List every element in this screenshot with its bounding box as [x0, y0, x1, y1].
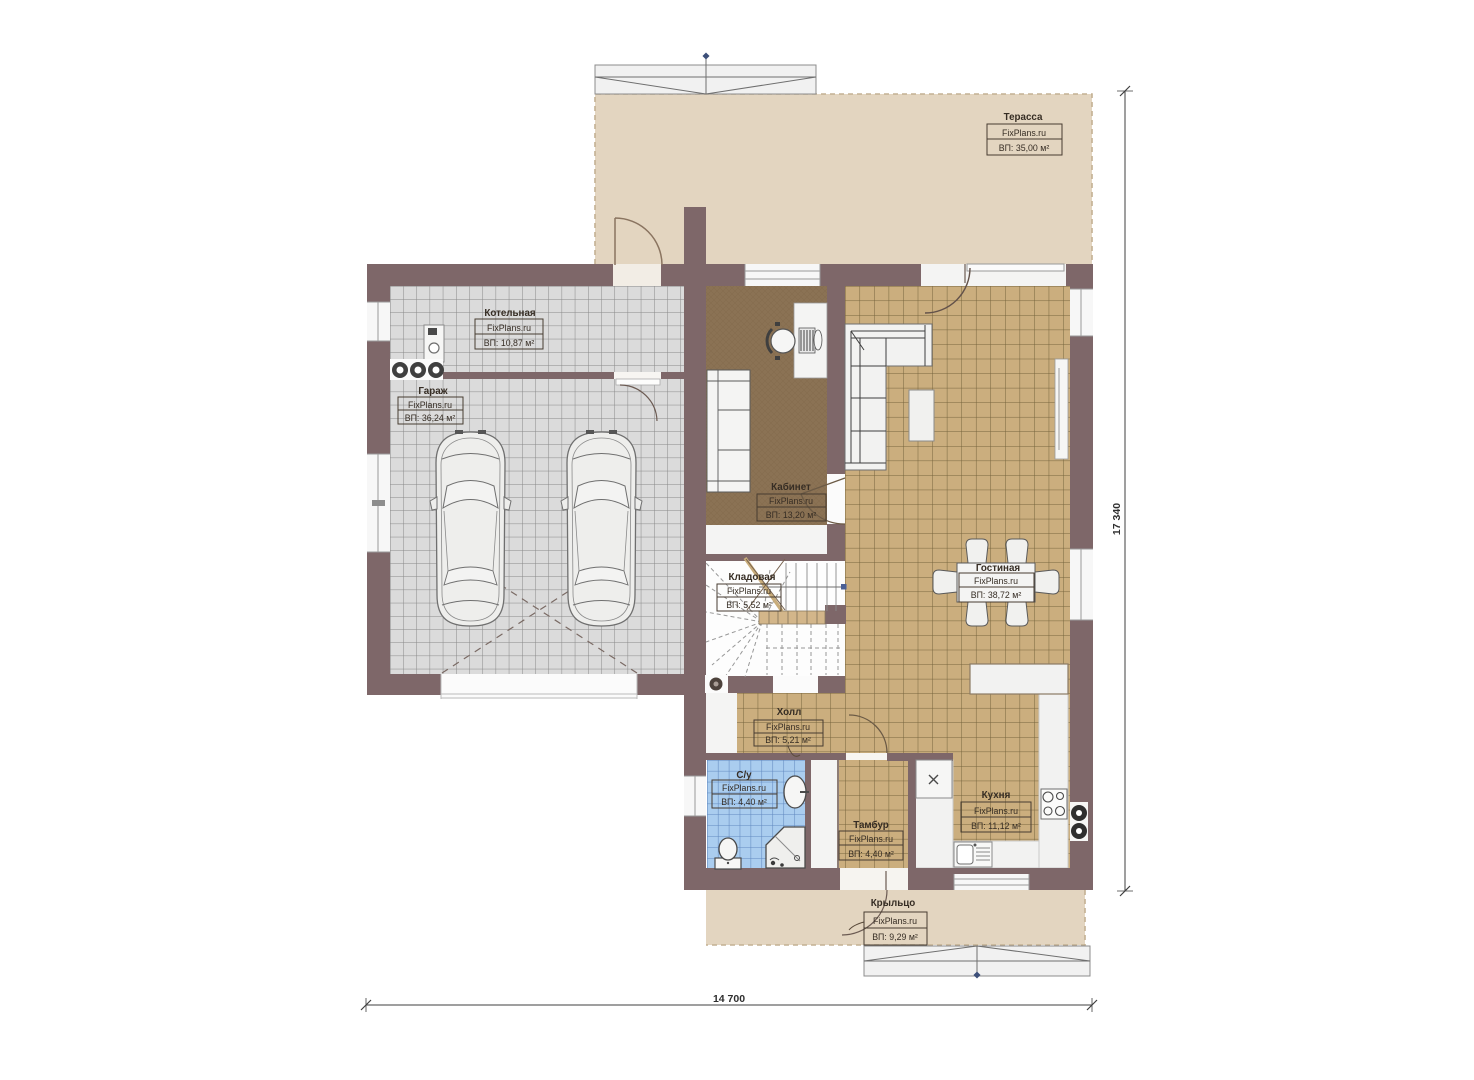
svg-text:FixPlans.ru: FixPlans.ru	[974, 806, 1018, 816]
svg-text:FixPlans.ru: FixPlans.ru	[727, 586, 771, 596]
svg-text:ВП: 4,40 м²: ВП: 4,40 м²	[721, 797, 767, 807]
svg-text:FixPlans.ru: FixPlans.ru	[974, 576, 1018, 586]
svg-text:FixPlans.ru: FixPlans.ru	[769, 496, 813, 506]
svg-text:Крыльцо: Крыльцо	[871, 898, 916, 909]
svg-text:ВП: 11,12 м²: ВП: 11,12 м²	[971, 821, 1021, 831]
svg-text:ВП: 13,20 м²: ВП: 13,20 м²	[766, 510, 817, 520]
svg-text:Холл: Холл	[777, 707, 802, 718]
svg-text:FixPlans.ru: FixPlans.ru	[1002, 128, 1046, 138]
svg-text:ВП: 5,52 м²: ВП: 5,52 м²	[726, 600, 772, 610]
svg-text:17 340: 17 340	[1111, 503, 1123, 535]
svg-text:Тамбур: Тамбур	[853, 820, 889, 831]
svg-text:Кабинет: Кабинет	[771, 482, 811, 493]
svg-text:FixPlans.ru: FixPlans.ru	[766, 722, 810, 732]
svg-text:14 700: 14 700	[713, 993, 745, 1005]
svg-text:FixPlans.ru: FixPlans.ru	[487, 323, 531, 333]
svg-text:Кухня: Кухня	[982, 790, 1011, 801]
svg-text:Гостиная: Гостиная	[976, 563, 1021, 574]
svg-text:FixPlans.ru: FixPlans.ru	[722, 783, 766, 793]
svg-text:Кладовая: Кладовая	[729, 572, 776, 583]
svg-text:ВП: 9,29 м²: ВП: 9,29 м²	[872, 932, 918, 942]
svg-text:Гараж: Гараж	[418, 386, 448, 397]
svg-text:ВП: 4,40 м²: ВП: 4,40 м²	[848, 849, 894, 859]
svg-text:ВП: 36,24 м²: ВП: 36,24 м²	[405, 413, 456, 423]
svg-text:Котельная: Котельная	[484, 308, 536, 319]
svg-text:FixPlans.ru: FixPlans.ru	[408, 400, 452, 410]
svg-text:ВП: 38,72 м²: ВП: 38,72 м²	[971, 590, 1022, 600]
svg-text:FixPlans.ru: FixPlans.ru	[849, 834, 893, 844]
svg-text:ВП: 5,21 м²: ВП: 5,21 м²	[765, 735, 811, 745]
svg-text:ВП: 35,00 м²: ВП: 35,00 м²	[999, 143, 1050, 153]
svg-text:FixPlans.ru: FixPlans.ru	[873, 916, 917, 926]
svg-text:С/у: С/у	[736, 770, 752, 781]
svg-text:Терасса: Терасса	[1004, 112, 1043, 123]
svg-text:ВП: 10,87 м²: ВП: 10,87 м²	[484, 338, 535, 348]
